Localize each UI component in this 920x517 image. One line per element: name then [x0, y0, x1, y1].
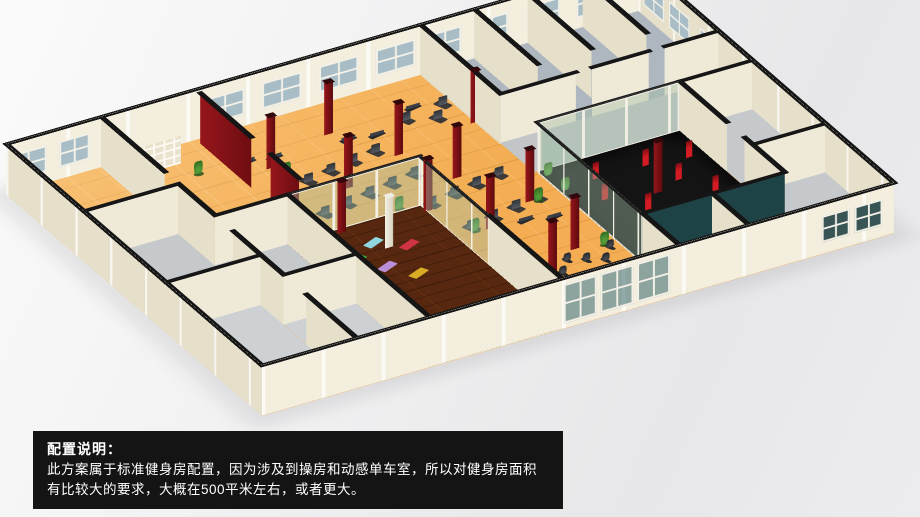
punching-bag	[676, 162, 682, 183]
caption-body: 此方案属于标准健身房配置，因为涉及到操房和动感单车室，所以对健身房面积有比较大的…	[47, 460, 549, 500]
red-pillar	[570, 195, 579, 251]
red-pillar	[526, 147, 535, 203]
red-pillar	[453, 123, 462, 179]
caption-box: 配置说明： 此方案属于标准健身房配置，因为涉及到操房和动感单车室，所以对健身房面…	[33, 431, 563, 509]
window	[637, 254, 670, 303]
window	[822, 208, 850, 243]
render-stage: 配置说明： 此方案属于标准健身房配置，因为涉及到操房和动感单车室，所以对健身房面…	[0, 0, 920, 517]
red-pillar	[654, 139, 663, 195]
window	[855, 199, 883, 234]
caption-title: 配置说明：	[47, 439, 549, 460]
window	[262, 71, 301, 109]
window	[601, 264, 634, 313]
punching-bag	[686, 140, 692, 161]
window	[564, 275, 597, 324]
window	[59, 133, 89, 168]
window	[376, 39, 415, 77]
red-pillar	[394, 101, 403, 157]
punching-bag	[642, 148, 648, 169]
red-pillar	[324, 80, 333, 136]
red-pillar	[337, 179, 346, 235]
white-pillar	[385, 194, 393, 249]
